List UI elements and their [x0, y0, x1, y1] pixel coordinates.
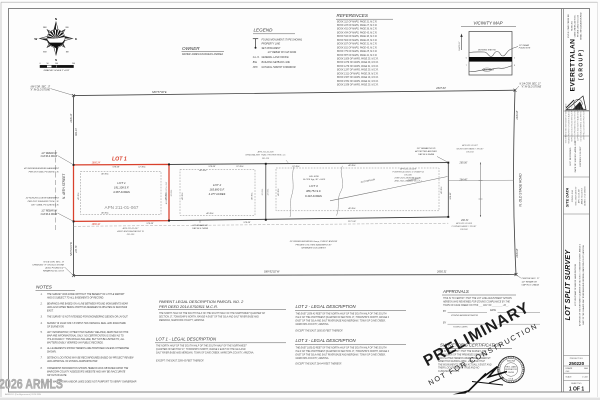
- svg-text:2640.08': 2640.08': [516, 248, 519, 259]
- svg-text:G.L.O.: G.L.O.: [253, 57, 260, 59]
- svg-text:LOT 1 - LEGAL DESCRIPTION: LOT 1 - LEGAL DESCRIPTION: [156, 337, 217, 342]
- svg-text:BUILDING SETBACK LINE: BUILDING SETBACK LINE: [262, 61, 291, 64]
- svg-text:BOOK 1076 OF MAPS, PAGE 26, M.: BOOK 1076 OF MAPS, PAGE 26, M.C.R.: [337, 61, 379, 64]
- svg-text:ALSO FOUND 1/2": ALSO FOUND 1/2": [44, 267, 64, 270]
- svg-text:REFERENCES: REFERENCES: [337, 13, 369, 18]
- svg-text:200: 200: [72, 63, 75, 65]
- svg-text:4.387 ACRES: 4.387 ACRES: [113, 190, 130, 194]
- svg-text:40' BSL: 40' BSL: [348, 164, 356, 167]
- svg-text:SET MONUMENT: SET MONUMENT: [262, 48, 281, 50]
- svg-text:SCALE: SCALE: [566, 375, 573, 378]
- svg-text:BOOK 544 OF MAPS, PAGE 30, M.C: BOOK 544 OF MAPS, PAGE 30, M.C.R.: [337, 35, 378, 38]
- svg-text:12' BSL: 12' BSL: [268, 189, 270, 196]
- svg-text:POWERS ALONZO D JR/AMY A: POWERS ALONZO D JR/AMY A: [392, 171, 424, 174]
- svg-text:ARMLS® (For Agreement) 2026 FB: ARMLS® (For Agreement) 2026 FBS: [5, 393, 42, 396]
- svg-text:163,680 S.F.: 163,680 S.F.: [209, 188, 224, 192]
- svg-text:FOUND SITE: FOUND SITE: [519, 47, 531, 49]
- svg-text:VICINITY MAP: VICINITY MAP: [473, 21, 502, 26]
- svg-text:N89°52'24"W: N89°52'24"W: [70, 241, 73, 255]
- svg-text:THE NORTH HALF OF THE SOUTH HA: THE NORTH HALF OF THE SOUTH HALF OF THE …: [159, 312, 266, 315]
- svg-text:FOUND MONUMENT (TYPE SHOWN): FOUND MONUMENT (TYPE SHOWN): [262, 39, 303, 41]
- svg-text:NOTES: NOTES: [36, 285, 53, 290]
- svg-text:6.418 ACRES: 6.418 ACRES: [305, 194, 322, 198]
- svg-text:AND APPROVAL OF ZONING ADMINIS: AND APPROVAL OF ZONING ADMINISTRATOR.: [46, 360, 98, 363]
- svg-text:N. OLD STAGE ROAD: N. OLD STAGE ROAD: [519, 173, 523, 207]
- svg-text:1/2" REBAR W/: 1/2" REBAR W/: [41, 152, 57, 155]
- svg-text:BOOK 887 OF MAPS, PAGE 41, M.C: BOOK 887 OF MAPS, PAGE 41, M.C.R.: [337, 54, 378, 57]
- svg-text:LOT 2: LOT 2: [213, 183, 222, 187]
- svg-text:PROPERTY LINE: PROPERTY LINE: [262, 44, 281, 46]
- svg-text:S89°52'02"W: S89°52'02"W: [264, 270, 280, 274]
- svg-text:1/2" REBAR: 1/2" REBAR: [519, 44, 530, 47]
- svg-text:MAP ARE INFORMATIONAL ONLY. NO: MAP ARE INFORMATIONAL ONLY. NO CERTIFICA…: [47, 335, 124, 338]
- svg-text:264.40': 264.40': [459, 178, 468, 181]
- svg-text:W 1/4 COR. SEC. 17: W 1/4 COR. SEC. 17: [43, 261, 64, 264]
- svg-text:BOOK 637 OF MAPS, PAGE 31, M.C: BOOK 637 OF MAPS, PAGE 31, M.C.R.: [337, 43, 378, 46]
- svg-text:BOOK 631 OF MAPS, PAGE 43, M.C: BOOK 631 OF MAPS, PAGE 43, M.C.R.: [337, 46, 378, 49]
- svg-text:SEPARATE DOCUMENT: SEPARATE DOCUMENT: [301, 247, 326, 250]
- svg-text:APN 211-01-008: APN 211-01-008: [257, 150, 275, 153]
- svg-text:ASMT ANDREA/RAPIER W: ASMT ANDREA/RAPIER W: [116, 230, 145, 233]
- svg-text:EAST OF THE GILA AND SALT RIVE: EAST OF THE GILA AND SALT RIVER BASE AND…: [296, 320, 387, 323]
- svg-text:OWNERSHIP INFORMATION SHOWN HE: OWNERSHIP INFORMATION SHOWN HEREON WAS O…: [47, 367, 129, 370]
- svg-text:LOT 1: LOT 1: [117, 181, 126, 185]
- svg-text:ZONING ADMINISTRATOR: ZONING ADMINISTRATOR: [450, 314, 478, 317]
- svg-text:1"=100': 1"=100': [582, 376, 589, 378]
- svg-text:1/2" REBAR W/: 1/2" REBAR W/: [41, 209, 57, 212]
- svg-text:MCINTOSH FAMILY TRUST: MCINTOSH FAMILY TRUST: [456, 147, 484, 150]
- svg-text:"X" IN GLO STONE: "X" IN GLO STONE: [521, 87, 542, 89]
- svg-text:MARICOPA COUNTY, ARIZONA.: MARICOPA COUNTY, ARIZONA.: [296, 357, 330, 360]
- svg-text:578.08': 578.08': [146, 223, 154, 225]
- svg-text:20' INGRESS/EGRESS &amp; PUBLI: 20' INGRESS/EGRESS &amp; PUBLIC AND/OR: [289, 240, 338, 243]
- svg-text:DR-130: DR-130: [127, 234, 135, 236]
- svg-text:WINDWALKER TRAIL PROPERTIES LL: WINDWALKER TRAIL PROPERTIES LLC: [245, 154, 286, 157]
- svg-text:40' BSL: 40' BSL: [181, 191, 184, 199]
- svg-text:660.13': 660.13': [75, 128, 78, 136]
- svg-text:APN: 211-01-067: APN: 211-01-067: [577, 189, 580, 203]
- svg-text:BOOK 1311 OF MAPS, PAGE 28, M.: BOOK 1311 OF MAPS, PAGE 28, M.C.R.: [337, 72, 379, 75]
- svg-text:APN 211-01-006: APN 211-01-006: [455, 222, 473, 225]
- svg-text:THE SURVEY WAS DONE WITHOUT TH: THE SURVEY WAS DONE WITHOUT THE BENEFIT …: [47, 293, 125, 296]
- svg-text:DR-306: DR-306: [404, 175, 412, 177]
- svg-text:7: 7: [466, 65, 467, 67]
- svg-text:12' BSL: 12' BSL: [138, 167, 146, 169]
- svg-text:EXCEPT THE EAST 264.44 FEET TH: EXCEPT THE EAST 264.44 FEET THEREOF.: [296, 362, 343, 365]
- svg-text:1 OF 1: 1 OF 1: [569, 386, 585, 392]
- svg-text:233.76': 233.76': [76, 245, 78, 254]
- svg-text:DKT 72406, PG 1296 M.C.R.: DKT 72406, PG 1296 M.C.R.: [31, 203, 59, 206]
- svg-text:2640.08': 2640.08': [516, 110, 519, 121]
- svg-text:N 48TH ST: N 48TH ST: [458, 41, 461, 51]
- svg-text:GRAPHIC SCALE 1"=100': GRAPHIC SCALE 1"=100': [44, 69, 70, 72]
- svg-text:THE EAST 2059.43 FEET OF THE N: THE EAST 2059.43 FEET OF THE NORTH HALF …: [296, 313, 387, 316]
- svg-text:BOOK 1558 OF MAPS, PAGE 25, M.: BOOK 1558 OF MAPS, PAGE 25, M.C.R.: [337, 84, 379, 87]
- svg-text:RAPIER JAMES DAVID/JEAN ANDREA: RAPIER JAMES DAVID/JEAN ANDREA: [182, 53, 223, 56]
- svg-text:LOT 3 - LEGAL DESCRIPTION: LOT 3 - LEGAL DESCRIPTION: [296, 338, 357, 343]
- svg-text:40' BSL: 40' BSL: [199, 169, 207, 172]
- svg-text:MATTERS EASILY VERIFIED VIA PU: MATTERS EASILY VERIFIED VIA PUBLIC RECOR…: [47, 342, 104, 345]
- svg-text:191,108 S.F.: 191,108 S.F.: [114, 186, 129, 190]
- svg-text:EXCEPT THE EAST 1650.00 FEET T: EXCEPT THE EAST 1650.00 FEET THEREOF.: [296, 329, 344, 332]
- svg-text:ANY INFORMATION, OTHER THAN SU: ANY INFORMATION, OTHER THAN SURVEY RELAT…: [46, 331, 129, 334]
- svg-text:CENTER SEC. 17: CENTER SEC. 17: [522, 278, 541, 280]
- svg-text:40' BSL: 40' BSL: [101, 172, 109, 175]
- svg-text:NATURAL HABITAT CORRIDOR: NATURAL HABITAT CORRIDOR: [262, 66, 296, 69]
- svg-text:EAG: EAG: [584, 367, 588, 370]
- svg-text:APN 211-01-029: APN 211-01-029: [399, 168, 417, 171]
- svg-text:THE EAST 1650.00 FEET OF THE N: THE EAST 1650.00 FEET OF THE NORTH HALF …: [296, 347, 387, 350]
- svg-text:THE SURVEY IS NOT INTENDED FOR: THE SURVEY IS NOT INTENDED FOR ENGINEERI…: [47, 316, 128, 319]
- svg-text:AND ALSO WHEN BEING NORTH 00 D: AND ALSO WHEN BEING NORTH 00 DEGREES 52 …: [46, 306, 128, 309]
- svg-text:MORNING STAR RD: MORNING STAR RD: [478, 49, 496, 52]
- svg-text:HEREON WAS REVIEWED FOR ZONING: HEREON WAS REVIEWED FOR ZONING COMPLIANC…: [443, 301, 510, 304]
- svg-text:EAST OF THE GILA AND SALT RIVE: EAST OF THE GILA AND SALT RIVER BASE AND…: [296, 354, 387, 357]
- svg-text:W: W: [34, 37, 37, 41]
- svg-text:SHEET NO.: SHEET NO.: [571, 383, 582, 385]
- svg-text:260.31': 260.31': [460, 219, 469, 222]
- svg-text:GENERAL LAND OFFICE: GENERAL LAND OFFICE: [262, 56, 290, 59]
- svg-text:EVERETTALAN: EVERETTALAN: [570, 39, 577, 92]
- svg-text:250220: 250220: [569, 361, 585, 366]
- svg-text:5: 5: [514, 58, 515, 60]
- svg-text:40' BSL: 40' BSL: [77, 191, 80, 199]
- svg-text:20' NON-EXCLUSIVE EASEMENT: 20' NON-EXCLUSIVE EASEMENT: [25, 197, 60, 200]
- svg-text:EMAIL: INFO@EAGROUP.BIZ: EMAIL: INFO@EAGROUP.BIZ: [580, 12, 583, 40]
- svg-text:4.377 ACRES: 4.377 ACRES: [209, 192, 226, 196]
- svg-text:100: 100: [55, 63, 58, 65]
- svg-text:26434: 26434: [508, 372, 515, 374]
- svg-text:578.08': 578.08': [112, 167, 120, 169]
- svg-text:HILLSIDE: HILLSIDE: [309, 176, 319, 178]
- svg-text:BOOK 1287 OF MAPS, PAGE 25, M.: BOOK 1287 OF MAPS, PAGE 25, M.C.R.: [337, 69, 379, 72]
- svg-text:CAVE CREEK: CAVE CREEK: [482, 69, 495, 72]
- svg-text:REBAR NO ID, 0.5' E: REBAR NO ID, 0.5' E: [43, 270, 65, 273]
- svg-text:ARIZONA: ARIZONA: [507, 359, 515, 362]
- svg-text:DR-160: DR-160: [460, 229, 468, 231]
- svg-text:SURVEY IS VALID ONLY IF PRINT: SURVEY IS VALID ONLY IF PRINT HAS ORIGIN…: [47, 322, 126, 325]
- svg-text:386,751 S.F.: 386,751 S.F.: [306, 189, 321, 193]
- svg-text:6: 6: [466, 58, 467, 60]
- svg-text:DR-150: DR-150: [466, 152, 474, 154]
- svg-text:MARICOPA COUNTY, ARIZONA.: MARICOPA COUNTY, ARIZONA.: [296, 323, 330, 326]
- svg-text:SALT RIVER BASE AND MERIDIAN,: SALT RIVER BASE AND MERIDIAN, TOWN OF CA…: [156, 352, 254, 355]
- svg-text:A PORTION OF THE NORTHWEST QUA: A PORTION OF THE NORTHWEST QUARTER OF SE…: [579, 244, 582, 326]
- svg-text:ALL EASEMENTS SHOWN HEREON ARE: ALL EASEMENTS SHOWN HEREON ARE PROPOSED …: [46, 347, 129, 350]
- svg-text:2640.13': 2640.13': [70, 113, 73, 124]
- svg-text:S: S: [55, 58, 57, 62]
- svg-text:OF SURVEYOR.: OF SURVEYOR.: [47, 326, 65, 328]
- svg-text:CAP RLS 46646: CAP RLS 46646: [41, 213, 58, 216]
- svg-text:1680.42': 1680.42': [92, 223, 101, 226]
- svg-text:BY: BY: [443, 323, 447, 325]
- svg-text:LOT SPLIT SURVEY: LOT SPLIT SURVEY: [564, 249, 572, 321]
- svg-text:NW COR. SEC. 17: NW COR. SEC. 17: [31, 86, 51, 88]
- svg-text:OWNER: OWNER: [182, 46, 200, 51]
- svg-text:THIS IS TO CERTIFY THAT THE LO: THIS IS TO CERTIFY THAT THE LOT LINE ADJ…: [443, 297, 512, 300]
- svg-text:EXCEPT: THE EAST 2059.43 FEET: EXCEPT: THE EAST 2059.43 FEET THEREOF.: [156, 359, 204, 362]
- svg-text:BOOK 1507 OF MAPS, PAGE 16, M.: BOOK 1507 OF MAPS, PAGE 16, M.C.R.: [337, 76, 379, 79]
- svg-text:PER DOC 2024-0051719 M.C.R.: PER DOC 2024-0051719 M.C.R.: [28, 200, 60, 203]
- svg-text:ZONING: R-43: ZONING: R-43: [572, 190, 574, 202]
- svg-text:AND 2021-0836087 M.C.R.): AND 2021-0836087 M.C.R.): [394, 180, 422, 183]
- svg-text:MARICOPA COUNTY ASSESSOR'S WEB: MARICOPA COUNTY ASSESSOR'S WEBSITE AND M…: [47, 371, 126, 374]
- svg-text:2.: 2.: [40, 304, 43, 306]
- svg-text:2650.31': 2650.31': [436, 269, 447, 273]
- svg-text:BOOK 434 OF MAPS, PAGE 43, M.C: BOOK 434 OF MAPS, PAGE 43, M.C.R.: [337, 31, 378, 34]
- svg-text:SITE DATA: SITE DATA: [565, 188, 569, 208]
- svg-text:LOT SPLIT/MAP OF MINOR LAND DI: LOT SPLIT/MAP OF MINOR LAND DIVISION: [574, 263, 577, 306]
- svg-text:N. 48TH STREET: N. 48TH STREET: [62, 173, 66, 199]
- svg-text:1680.24': 1680.24': [92, 162, 101, 165]
- svg-text:8: 8: [514, 65, 515, 67]
- svg-text:DATE OF SURVEY: APRIL 2025: DATE OF SURVEY: APRIL 2025: [574, 140, 577, 172]
- svg-text:BOOK 779 OF MAPS, PAGE 25, M.C: BOOK 779 OF MAPS, PAGE 25, M.C.R.: [337, 50, 378, 53]
- svg-text:CAVE CREEK, AZ 85331: CAVE CREEK, AZ 85331: [573, 14, 576, 37]
- svg-text:E: E: [75, 37, 77, 41]
- svg-text:265.06': 265.06': [459, 161, 468, 164]
- svg-text:[ G R O U P ]: [ G R O U P ]: [579, 50, 585, 80]
- svg-text:BOOK 1009 OF MAPS, PAGE 25, M.: BOOK 1009 OF MAPS, PAGE 25, M.C.R.: [337, 58, 379, 61]
- svg-text:2637.63': 2637.63': [435, 86, 446, 90]
- svg-text:APN 211-01-067: APN 211-01-067: [105, 205, 139, 210]
- svg-text:50: 50: [46, 63, 48, 65]
- svg-text:40' BSL: 40' BSL: [277, 187, 280, 195]
- svg-text:QUARTER OF SECTION 17, TOWNSHI: QUARTER OF SECTION 17, TOWNSHIP 6 NORTH,…: [156, 348, 246, 351]
- svg-text:264.40': 264.40': [449, 192, 452, 201]
- svg-text:REPRODUCTION OR REUSE WITHOUT: REPRODUCTION OR REUSE WITHOUT WRITTEN: [572, 105, 574, 141]
- svg-text:SITE: 4700 N 48TH ST: SITE: 4700 N 48TH ST: [575, 186, 577, 206]
- svg-text:ASSESSOR'S PCL LINE: ASSESSOR'S PCL LINE: [165, 181, 168, 205]
- svg-text:PHONE: (480) 555-0134: PHONE: (480) 555-0134: [578, 14, 580, 37]
- svg-text:THE NORTH HALF OF THE SOUTH HA: THE NORTH HALF OF THE SOUTH HALF OF THE …: [156, 345, 247, 348]
- svg-text:1171.02': 1171.02': [348, 221, 357, 223]
- svg-text:BOOK 312 OF MAPS, PAGE 31, M.C: BOOK 312 OF MAPS, PAGE 31, M.C.R.: [337, 20, 378, 23]
- svg-text:BSL: BSL: [253, 62, 258, 64]
- svg-text:40' BSL: 40' BSL: [101, 212, 109, 215]
- svg-text:PER DKT 5056, PG 383 M.C.R.: PER DKT 5056, PG 383 M.C.R.: [29, 172, 60, 174]
- svg-text:CAP RLS 46646: CAP RLS 46646: [41, 155, 58, 158]
- svg-text:TOWN OF CAVE CREEK ON THIS ___: TOWN OF CAVE CREEK ON THIS ___ DAY OF __…: [443, 304, 509, 307]
- svg-text:TOWN CLERK: TOWN CLERK: [453, 327, 468, 329]
- svg-text:IT'S ACCURACY. THIS WOULD INCL: IT'S ACCURACY. THIS WOULD INCLUDE, BUT N…: [47, 338, 125, 341]
- svg-text:DRAWN: DRAWN: [566, 367, 573, 370]
- svg-text:SETBACK LOCATIONS MAY BE RECON: SETBACK LOCATIONS MAY BE RECONFIGURED BA…: [47, 357, 134, 360]
- svg-text:BY: BY: [443, 311, 447, 313]
- svg-text:BOOK 563 OF MAPS, PAGE 20, M.C: BOOK 563 OF MAPS, PAGE 20, M.C.R.: [337, 39, 378, 42]
- svg-text:0: 0: [39, 63, 40, 65]
- svg-text:578.08': 578.08': [208, 166, 216, 168]
- svg-text:DATE: DATE: [490, 309, 496, 312]
- svg-text:AND IS SUBJECT TO ALL EASEMENT: AND IS SUBJECT TO ALL EASEMENTS OF RECOR…: [46, 297, 104, 300]
- svg-text:SLOPE &gt; 30' +/-600: SLOPE &gt; 30' +/-600: [303, 178, 326, 181]
- svg-text:REG. LAND: REG. LAND: [505, 366, 517, 369]
- svg-text:4545 E. CAVE CREEK RD: 4545 E. CAVE CREEK RD: [567, 14, 570, 38]
- svg-text:PER DEED 2014-0792811 M.C.R.: PER DEED 2014-0792811 M.C.R.: [159, 304, 218, 309]
- svg-text:SHOWN.: SHOWN.: [47, 351, 57, 353]
- svg-text:1/2" REBAR W/ CAP 29434: 1/2" REBAR W/ CAP 29434: [268, 51, 297, 54]
- svg-text:12' BSL: 12' BSL: [236, 166, 244, 168]
- svg-text:12' BSL: 12' BSL: [171, 190, 173, 197]
- svg-text:1/2" REBAR W/: 1/2" REBAR W/: [522, 280, 538, 283]
- svg-text:SECTION 17, TOWNSHIP 6 NORTH,: SECTION 17, TOWNSHIP 6 NORTH, RANGE 4 EA…: [159, 316, 259, 319]
- svg-text:"X" IN GLO STONE: "X" IN GLO STONE: [30, 89, 51, 91]
- svg-text:EXPIRES 3-31-2027: EXPIRES 3-31-2027: [580, 146, 582, 167]
- svg-text:12' BSL: 12' BSL: [262, 189, 264, 196]
- svg-text:BOOK 1552 OF MAPS, PAGE 24, M.: BOOK 1552 OF MAPS, PAGE 24, M.C.R.: [337, 80, 379, 83]
- svg-text:40' BSL: 40' BSL: [251, 191, 254, 199]
- svg-text:N 1/4 COR. SEC. 17: N 1/4 COR. SEC. 17: [520, 82, 542, 85]
- svg-text:1/2" REBAR NO ID: 1/2" REBAR NO ID: [417, 147, 436, 150]
- svg-text:CAP RLS #26434: CAP RLS #26434: [522, 284, 540, 287]
- svg-text:BOOK 415 OF MAPS, PAGE 27, M.C: BOOK 415 OF MAPS, PAGE 27, M.C.R.: [337, 24, 378, 27]
- svg-text:CHISELED "X" ON GLO STONE: CHISELED "X" ON GLO STONE: [32, 265, 64, 267]
- svg-text:NHC: NHC: [253, 67, 258, 69]
- svg-text:HALF OF THE NORTHWEST QUARTER: HALF OF THE NORTHWEST QUARTER OF SECTION…: [296, 350, 390, 353]
- svg-text:AREA: 741,539 S.F.: AREA: 741,539 S.F.: [581, 187, 584, 204]
- svg-text:EAST.: EAST.: [47, 310, 54, 313]
- svg-text:40' BSL: 40' BSL: [206, 212, 214, 215]
- svg-text:578.08': 578.08': [243, 222, 251, 224]
- svg-text:40' BSL: 40' BSL: [440, 185, 443, 193]
- svg-text:NOT RECORDED: NOT RECORDED: [570, 147, 572, 165]
- svg-text:(SEE 2021-0836088 M.C.R.: (SEE 2021-0836088 M.C.R.: [395, 178, 422, 180]
- svg-text:APPROVALS: APPROVALS: [442, 289, 469, 294]
- svg-text:EAST OF THE GILA AND SALT RIVE: EAST OF THE GILA AND SALT RIVER BASE AND…: [582, 245, 585, 325]
- svg-text:S89°57'00"E: S89°57'00"E: [152, 90, 167, 94]
- svg-text:LOT 2 - LEGAL DESCRIPTION: LOT 2 - LEGAL DESCRIPTION: [296, 304, 357, 309]
- svg-text:CONNER FAMILY TRUST: CONNER FAMILY TRUST: [452, 225, 478, 228]
- svg-text:40' INGRESS/EGRESS EASEMENT: 40' INGRESS/EGRESS EASEMENT: [24, 167, 60, 170]
- svg-text:CAP RLS 26434: CAP RLS 26434: [418, 153, 435, 156]
- svg-text:MERIDIAN, MARICOPA COUNTY, ARI: MERIDIAN, MARICOPA COUNTY, ARIZONA.: [159, 319, 205, 322]
- svg-text:2026 ARMLS: 2026 ARMLS: [0, 376, 63, 392]
- svg-text:BEARINGS ARE BASED ON A LINE B: BEARINGS ARE BASED ON A LINE BETWEEN FOU…: [47, 303, 128, 306]
- svg-text:ACCEPTED AFFIXED: ACCEPTED AFFIXED: [414, 150, 437, 153]
- svg-text:LOT 1: LOT 1: [112, 157, 127, 163]
- svg-text:NE: NE: [66, 27, 70, 29]
- svg-text:BOOK 431 OF MAPS, PAGE 36, M.C: BOOK 431 OF MAPS, PAGE 36, M.C.R.: [337, 28, 378, 31]
- svg-text:BOOK 1276 OF MAPS, PAGE 31, M.: BOOK 1276 OF MAPS, PAGE 31, M.C.R.: [337, 65, 379, 68]
- svg-text:SUITE 200: SUITE 200: [571, 20, 573, 31]
- svg-text:PRIVATE UTILITIES EASEMENT BY: PRIVATE UTILITIES EASEMENT BY: [295, 243, 332, 246]
- svg-text:HALF OF THE NORTHWEST QUARTER: HALF OF THE NORTHWEST QUARTER OF SECTION…: [296, 316, 390, 319]
- svg-text:APN 211-01-067: APN 211-01-067: [122, 227, 140, 230]
- svg-text:DR-110: DR-110: [262, 158, 270, 160]
- svg-text:U.S.A.: U.S.A.: [509, 378, 514, 381]
- svg-text:LOT 3: LOT 3: [309, 184, 318, 188]
- svg-text:ACRES: 17.02 GROSS: ACRES: 17.02 GROSS: [584, 186, 587, 206]
- svg-text:CAP RLS 74096: CAP RLS 74096: [192, 227, 209, 230]
- svg-text:1/2" REBAR W/: 1/2" REBAR W/: [192, 224, 208, 227]
- svg-text:LEGEND: LEGEND: [254, 28, 274, 33]
- svg-text:APN 211-01-007: APN 211-01-007: [461, 144, 479, 147]
- svg-text:40' BSL: 40' BSL: [348, 207, 356, 210]
